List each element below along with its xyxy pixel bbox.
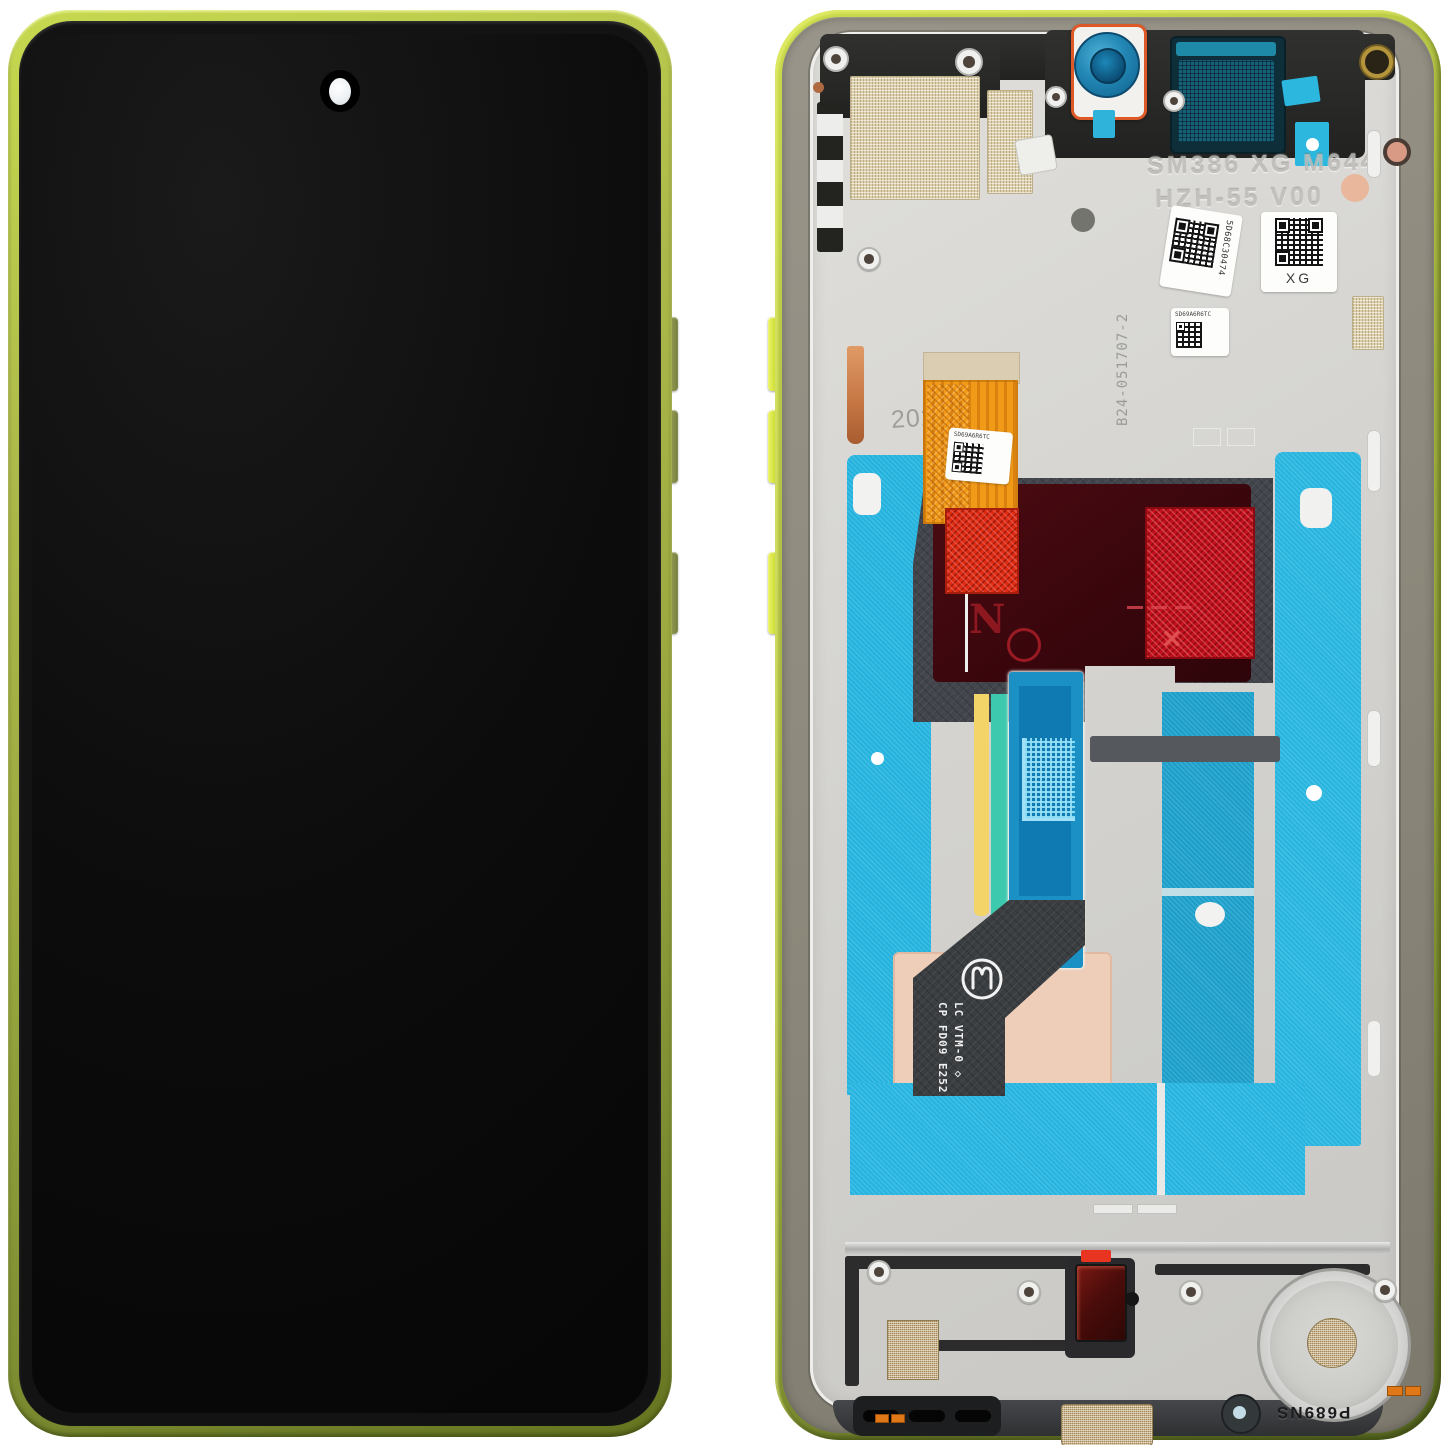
adhesive-gap-line [1162, 888, 1254, 896]
dash-mark [1151, 606, 1167, 609]
copper-pad-dot [1341, 174, 1369, 202]
x-mark: ✕ [1161, 624, 1183, 655]
screw-pink-center [1383, 138, 1411, 166]
front-camera-lens-icon [329, 78, 351, 105]
qr-code [1176, 322, 1202, 348]
antenna-mesh-pad [887, 1320, 939, 1380]
smd-components [875, 1414, 889, 1423]
frame-rib [845, 1256, 859, 1386]
flex-print-line2: LC VTM-0 ◇ [952, 1002, 965, 1078]
datamatrix-code [1022, 738, 1075, 821]
rubber-plug-dot [1071, 208, 1095, 232]
adhesive-notch [1300, 488, 1332, 528]
engraved-code-line1: SM386 XG M644 [1147, 148, 1378, 181]
screw [1163, 90, 1185, 112]
dash-mark [1127, 606, 1143, 609]
screw [823, 46, 849, 72]
qr-code [1275, 218, 1323, 266]
dash-mark [1175, 606, 1191, 609]
flex-label-code: SD69A6R6TC [953, 431, 990, 441]
frame-clip-bump [1367, 130, 1381, 178]
metal-clip [1014, 134, 1058, 176]
product-photo: SM386 XG M644 HZH-55 V00 5D68C30474 XG S… [0, 0, 1445, 1445]
adhesive-gap-line [1157, 1083, 1165, 1195]
flex-qr-label: SD69A6R6TC [945, 427, 1013, 484]
brass-screw-post [1361, 46, 1393, 78]
qr-label-xg: XG [1261, 212, 1337, 292]
frame-clip-bump [1367, 430, 1381, 492]
red-component-window [1075, 1264, 1127, 1342]
copper-contact-dot [813, 82, 824, 93]
emi-mesh-shield [850, 76, 980, 200]
screw [857, 247, 881, 271]
flex-red-section [945, 508, 1019, 594]
circle-mark [1007, 628, 1041, 662]
frame-clip-bump [1367, 1020, 1381, 1077]
speaker-mesh-center [1307, 1318, 1357, 1368]
yellow-strip [974, 694, 989, 916]
copper-strip [847, 346, 864, 444]
screw [1017, 1280, 1041, 1304]
adhesive-hole [1195, 902, 1225, 927]
etched-rect [1193, 428, 1221, 446]
screw [867, 1260, 891, 1284]
lcd-connector-bar [1090, 736, 1280, 762]
n-mark: N [969, 596, 1006, 643]
mic-port-center [1233, 1406, 1246, 1419]
smd-components [891, 1414, 905, 1423]
qr-code [1169, 218, 1219, 268]
adhesive-hole [871, 752, 884, 765]
adhesive-notch [853, 473, 881, 515]
qr-label-main: 5D68C30474 [1159, 205, 1243, 297]
sensor-hole [955, 48, 983, 76]
qr-code [952, 442, 985, 475]
frame-rib [935, 1340, 1085, 1351]
metal-seam [845, 1242, 1390, 1254]
metal-tab [1093, 1204, 1133, 1214]
camera-flex-tab [1093, 110, 1115, 138]
earpiece-mesh [1178, 60, 1274, 142]
adhesive-band-bottom [850, 1083, 1305, 1195]
grille-slot [909, 1410, 945, 1422]
frame-clip-bump [1367, 710, 1381, 767]
metal-tab [1137, 1204, 1177, 1214]
qr-label-small-code: SD69A6R6TC [1175, 311, 1211, 318]
smd-components [1405, 1386, 1421, 1396]
teal-strip [991, 694, 1008, 926]
phone-back-view: SM386 XG M644 HZH-55 V00 5D68C30474 XG S… [775, 10, 1441, 1440]
motorola-logo-icon [959, 956, 1005, 1002]
screw [1179, 1280, 1203, 1304]
front-camera-inner-lens-icon [1090, 48, 1126, 84]
emi-mesh-shield [1352, 296, 1384, 350]
frame-hole [1125, 1292, 1139, 1306]
earpiece-top-strip [1176, 42, 1276, 56]
red-component-tab [1081, 1250, 1111, 1262]
side-contact-clips [817, 102, 843, 252]
qr-label-xg-code: XG [1261, 270, 1337, 286]
display-screen [32, 34, 648, 1413]
chassis-code: P689NS [1275, 1402, 1350, 1422]
grille-slot [955, 1410, 991, 1422]
loudspeaker-mesh [1061, 1404, 1153, 1445]
screw [1373, 1278, 1397, 1302]
board-code-vertical: B24-051707-2 [1115, 313, 1131, 426]
etched-rect [1227, 428, 1255, 446]
screw [1045, 86, 1067, 108]
qr-label-small: SD69A6R6TC [1171, 308, 1229, 356]
cyan-tape-piece [1281, 76, 1320, 107]
flex-print-line1: CP FD09 E252 [936, 1002, 949, 1093]
phone-front-view [8, 10, 672, 1437]
smd-components [1387, 1386, 1403, 1396]
adhesive-hole [1306, 785, 1322, 801]
